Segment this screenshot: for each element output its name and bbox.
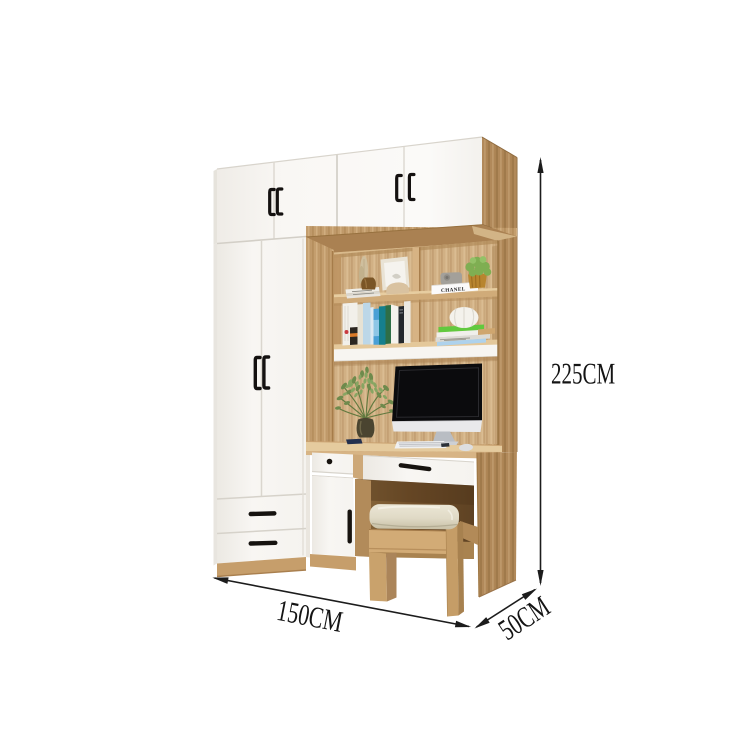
svg-text:225CM: 225CM [551,358,615,391]
